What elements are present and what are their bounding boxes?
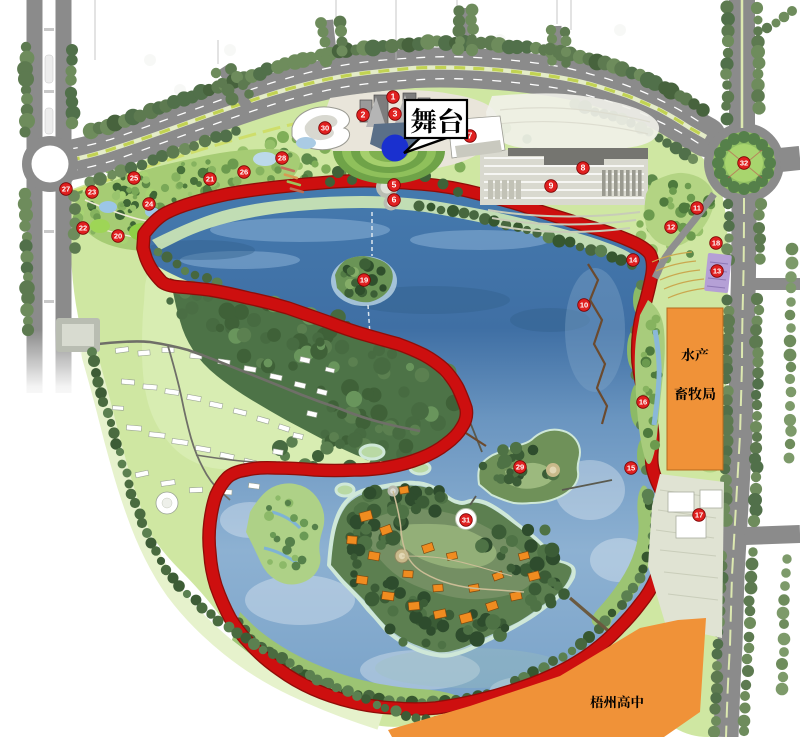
svg-text:16: 16: [639, 398, 647, 407]
svg-text:32: 32: [740, 159, 748, 168]
svg-text:20: 20: [114, 232, 122, 241]
svg-text:19: 19: [360, 276, 368, 285]
svg-text:29: 29: [516, 463, 524, 472]
svg-text:17: 17: [695, 511, 703, 520]
svg-text:9: 9: [549, 181, 554, 191]
svg-text:23: 23: [88, 188, 96, 197]
svg-text:2: 2: [361, 110, 366, 120]
svg-text:28: 28: [278, 154, 286, 163]
svg-text:7: 7: [468, 131, 473, 141]
svg-text:11: 11: [693, 204, 701, 213]
svg-text:30: 30: [321, 124, 329, 133]
svg-text:13: 13: [713, 267, 721, 276]
svg-text:24: 24: [145, 200, 154, 209]
svg-text:18: 18: [712, 239, 720, 248]
svg-text:12: 12: [667, 223, 675, 232]
svg-text:3: 3: [393, 109, 398, 119]
svg-text:5: 5: [392, 180, 397, 190]
svg-text:21: 21: [206, 175, 214, 184]
svg-text:31: 31: [462, 516, 470, 525]
svg-text:15: 15: [627, 464, 635, 473]
svg-text:14: 14: [629, 256, 638, 265]
svg-text:10: 10: [580, 301, 588, 310]
svg-text:25: 25: [130, 174, 138, 183]
svg-text:22: 22: [79, 224, 87, 233]
svg-text:26: 26: [240, 168, 248, 177]
svg-text:6: 6: [392, 195, 397, 205]
svg-text:27: 27: [62, 185, 70, 194]
svg-text:8: 8: [581, 163, 586, 173]
svg-text:1: 1: [391, 92, 396, 102]
